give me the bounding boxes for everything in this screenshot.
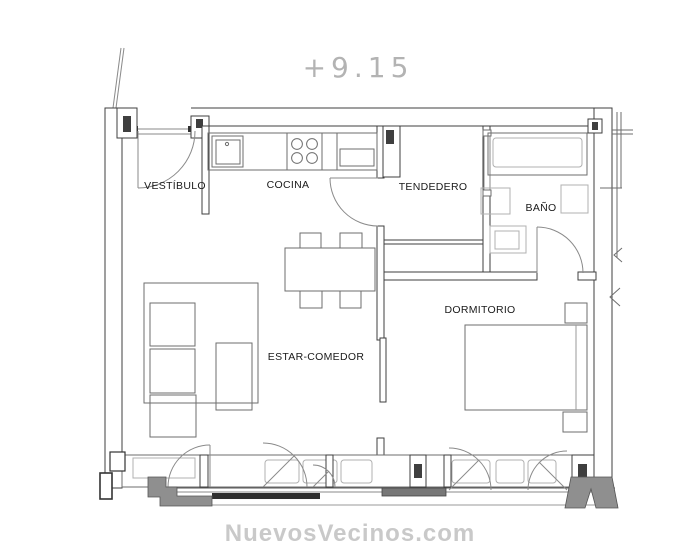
room-label-dormitorio: DORMITORIO: [444, 304, 515, 316]
dining-table-icon: [285, 233, 375, 308]
watermark-text: NuevosVecinos.com: [225, 520, 475, 547]
right-wall: [594, 108, 612, 488]
kitchen-sink-icon: [212, 136, 243, 167]
window-mullion: [200, 455, 208, 487]
outer-walls: [105, 108, 612, 488]
window-sill-bar: [212, 493, 320, 499]
dining-chair-icon: [300, 291, 322, 308]
living-bedroom-wall-upper: [377, 226, 384, 340]
wall-detail-box: [110, 452, 125, 471]
left-wall: [105, 108, 122, 488]
entrance-opening: [132, 107, 194, 134]
bathtub-icon: [488, 133, 587, 175]
window-mullion: [326, 455, 333, 487]
sofa-icon: [144, 283, 258, 437]
dining-chair-icon: [340, 291, 361, 308]
tendedero-door-swing: [330, 178, 378, 226]
room-label-estar-comedor: ESTAR-COMEDOR: [268, 351, 365, 363]
kitchen-counter: [208, 133, 377, 170]
nightstand-icon: [563, 412, 587, 432]
wall-detail-box: [100, 473, 112, 499]
dining-chair-icon: [300, 233, 321, 248]
ottoman-icon: [150, 395, 196, 437]
balcony-divider-line: [113, 48, 124, 108]
bedroom-top-wall-east: [578, 272, 596, 280]
sliding-door-icon: [483, 130, 491, 196]
dining-chair-icon: [340, 233, 362, 248]
living-bedroom-wall-lower: [377, 438, 384, 455]
floor-plan-drawing: +9.15: [0, 0, 700, 558]
floor-plan-page: +9.15: [0, 0, 700, 558]
room-label-bano: BAÑO: [526, 201, 557, 214]
bathroom-door-swing: [537, 227, 583, 273]
toilet-icon: [490, 226, 526, 253]
window-sill-bar: [382, 488, 446, 496]
chevron-mark-icon: [614, 248, 622, 262]
bedroom-sliding-door: [380, 338, 386, 402]
chaise-icon: [216, 343, 252, 410]
nightstand-icon: [565, 303, 587, 323]
bed-icon: [465, 325, 587, 410]
room-label-vestibulo: VESTÍBULO: [144, 179, 206, 192]
fridge-icon: [337, 133, 377, 170]
room-label-cocina: COCINA: [267, 179, 310, 191]
elevation-label: +9.15: [303, 51, 414, 84]
tendedero-bottom-wall: [384, 240, 484, 244]
bedroom-top-wall-west: [384, 272, 537, 280]
window-mullion: [444, 455, 451, 487]
stove-icon: [287, 133, 322, 170]
room-label-tendedero: TENDEDERO: [399, 181, 468, 193]
